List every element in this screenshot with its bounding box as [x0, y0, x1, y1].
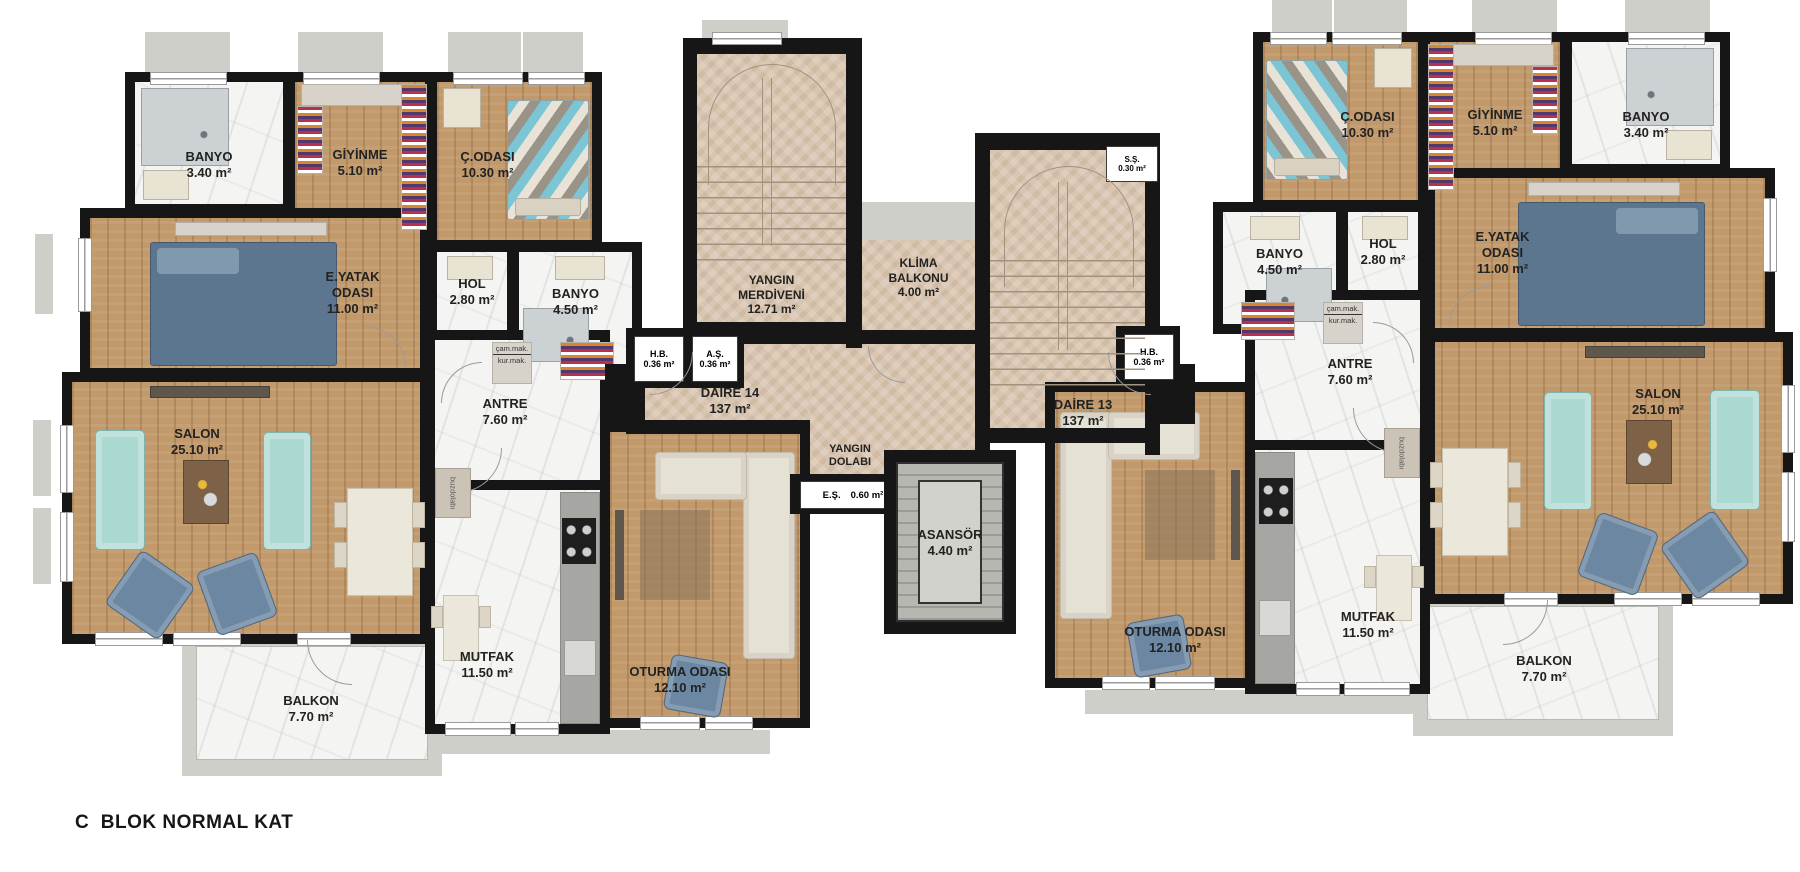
dryer-label-r: kur.mak. — [1329, 316, 1357, 325]
fridge-label: buzdolabı — [449, 477, 458, 510]
chair-r — [1430, 502, 1443, 528]
sill — [33, 420, 51, 496]
stair-left-wall-right — [846, 38, 862, 348]
elevator-car — [918, 480, 982, 604]
shaft-as-left: A.Ş. 0.36 m² — [692, 336, 738, 382]
window — [640, 716, 700, 730]
window-r — [1781, 385, 1795, 453]
pillow — [515, 198, 581, 216]
sink — [143, 170, 189, 200]
fridge-r: buzdolabı — [1384, 428, 1420, 478]
tv-unit-r — [1585, 346, 1705, 358]
shower-tray-r — [1626, 48, 1714, 126]
tv-unit — [150, 386, 270, 398]
shoe-rack — [297, 106, 323, 174]
dining-table — [347, 488, 413, 596]
rug-r — [1145, 470, 1215, 560]
sill-r — [1334, 0, 1407, 34]
kitchen-sink — [564, 640, 596, 676]
shower-tray — [141, 88, 229, 166]
sink-r — [1362, 216, 1408, 240]
pillows — [157, 248, 239, 274]
sill — [298, 32, 383, 74]
kitchen-sink-r — [1259, 600, 1291, 636]
window — [78, 238, 92, 312]
chair-r — [1412, 566, 1424, 588]
window — [173, 632, 241, 646]
sill-r — [1472, 0, 1557, 34]
dresser — [175, 222, 327, 236]
chair — [479, 606, 491, 628]
dining-table-r — [1442, 448, 1508, 556]
corner-sofa — [655, 452, 747, 500]
corner-sofa — [743, 452, 795, 659]
fridge-label-r: buzdolabı — [1398, 437, 1407, 470]
chair-r — [1430, 462, 1443, 488]
shaft-ss: S.Ş. 0.30 m² — [1106, 146, 1158, 182]
chair-r — [1364, 566, 1376, 588]
shoe-rack-r — [1532, 66, 1558, 134]
laundry-closet-r: çam.mak. kur.mak. — [1323, 302, 1363, 344]
window-r — [1155, 676, 1215, 690]
sink-r — [1250, 216, 1300, 240]
kitchen-table-r — [1376, 555, 1412, 621]
tv-unit — [615, 510, 624, 600]
sofa — [95, 430, 145, 550]
chair — [412, 502, 425, 528]
kitchen-door — [445, 722, 511, 736]
window-r — [1332, 32, 1402, 45]
pillow-r — [1274, 158, 1340, 176]
sill — [145, 32, 230, 74]
armchair — [663, 653, 730, 718]
fridge: buzdolabı — [435, 468, 471, 518]
klima-balkonu-floor — [862, 240, 975, 344]
kitchen-door-r — [1344, 682, 1410, 696]
pillows-r — [1616, 208, 1698, 234]
sill — [448, 32, 521, 74]
window — [60, 512, 74, 582]
chair-r — [1508, 502, 1521, 528]
sink-r — [1666, 130, 1712, 160]
desk — [443, 88, 481, 128]
stair-divider — [762, 78, 772, 246]
stair-right-wall-left — [975, 133, 990, 455]
sofa — [263, 432, 311, 550]
washing-machine-label-r: çam.mak. — [1324, 303, 1362, 315]
sofa-r — [1544, 392, 1592, 510]
chair — [334, 502, 347, 528]
coffee-table — [183, 460, 229, 524]
desk-r — [1374, 48, 1412, 88]
sill — [523, 32, 583, 72]
klima-slab — [862, 202, 975, 240]
stove — [562, 518, 596, 564]
sofa-r — [1710, 390, 1760, 510]
window — [515, 722, 559, 736]
stair-right-wall-bottom — [975, 428, 1160, 443]
window-r — [1614, 592, 1682, 606]
stove-r — [1259, 478, 1293, 524]
sink — [447, 256, 493, 280]
rug — [640, 510, 710, 600]
dresser-r — [1528, 182, 1680, 196]
sitting-room-door — [705, 716, 753, 730]
window — [453, 72, 523, 85]
washing-machine-label: çam.mak. — [493, 343, 531, 355]
sill — [35, 234, 53, 314]
room-balkon-r — [1427, 606, 1659, 720]
corner-sofa-r — [1060, 412, 1112, 619]
tv-unit-r — [1231, 470, 1240, 560]
corridor-wall-bottom-left — [626, 420, 810, 434]
plan-title: C BLOK NORMAL KAT — [75, 812, 293, 834]
wardrobe-clothes-r — [1428, 44, 1454, 190]
wardrobe-clothes — [401, 84, 427, 230]
armchair-r — [1126, 613, 1193, 678]
klima-wall-bottom — [862, 330, 975, 344]
chair — [412, 542, 425, 568]
window — [150, 72, 227, 85]
window-r — [1628, 32, 1705, 45]
chair-r — [1508, 462, 1521, 488]
sitting-room-door-r — [1102, 676, 1150, 690]
floor-plan: çam.mak. kur.mak. buzdolabı — [0, 0, 1800, 872]
sill-r — [1272, 0, 1332, 32]
shoe-rack-r — [1241, 302, 1295, 340]
dryer-label: kur.mak. — [498, 356, 526, 365]
sill — [33, 508, 51, 584]
window-r — [1296, 682, 1340, 696]
window-r — [1763, 198, 1777, 272]
coffee-table-r — [1626, 420, 1672, 484]
kitchen-table — [443, 595, 479, 661]
stair-left-wall-left — [683, 38, 697, 338]
chair — [431, 606, 443, 628]
sill-r — [1625, 0, 1710, 34]
stair-divider — [1058, 182, 1068, 350]
laundry-closet: çam.mak. kur.mak. — [492, 342, 532, 384]
window — [712, 32, 782, 45]
chair — [334, 542, 347, 568]
room-balkon — [196, 646, 428, 760]
sink — [555, 256, 605, 280]
window-r — [1270, 32, 1327, 45]
window — [60, 425, 74, 493]
window-r — [1781, 472, 1795, 542]
corridor-wall-top — [742, 330, 862, 344]
window — [528, 72, 585, 85]
